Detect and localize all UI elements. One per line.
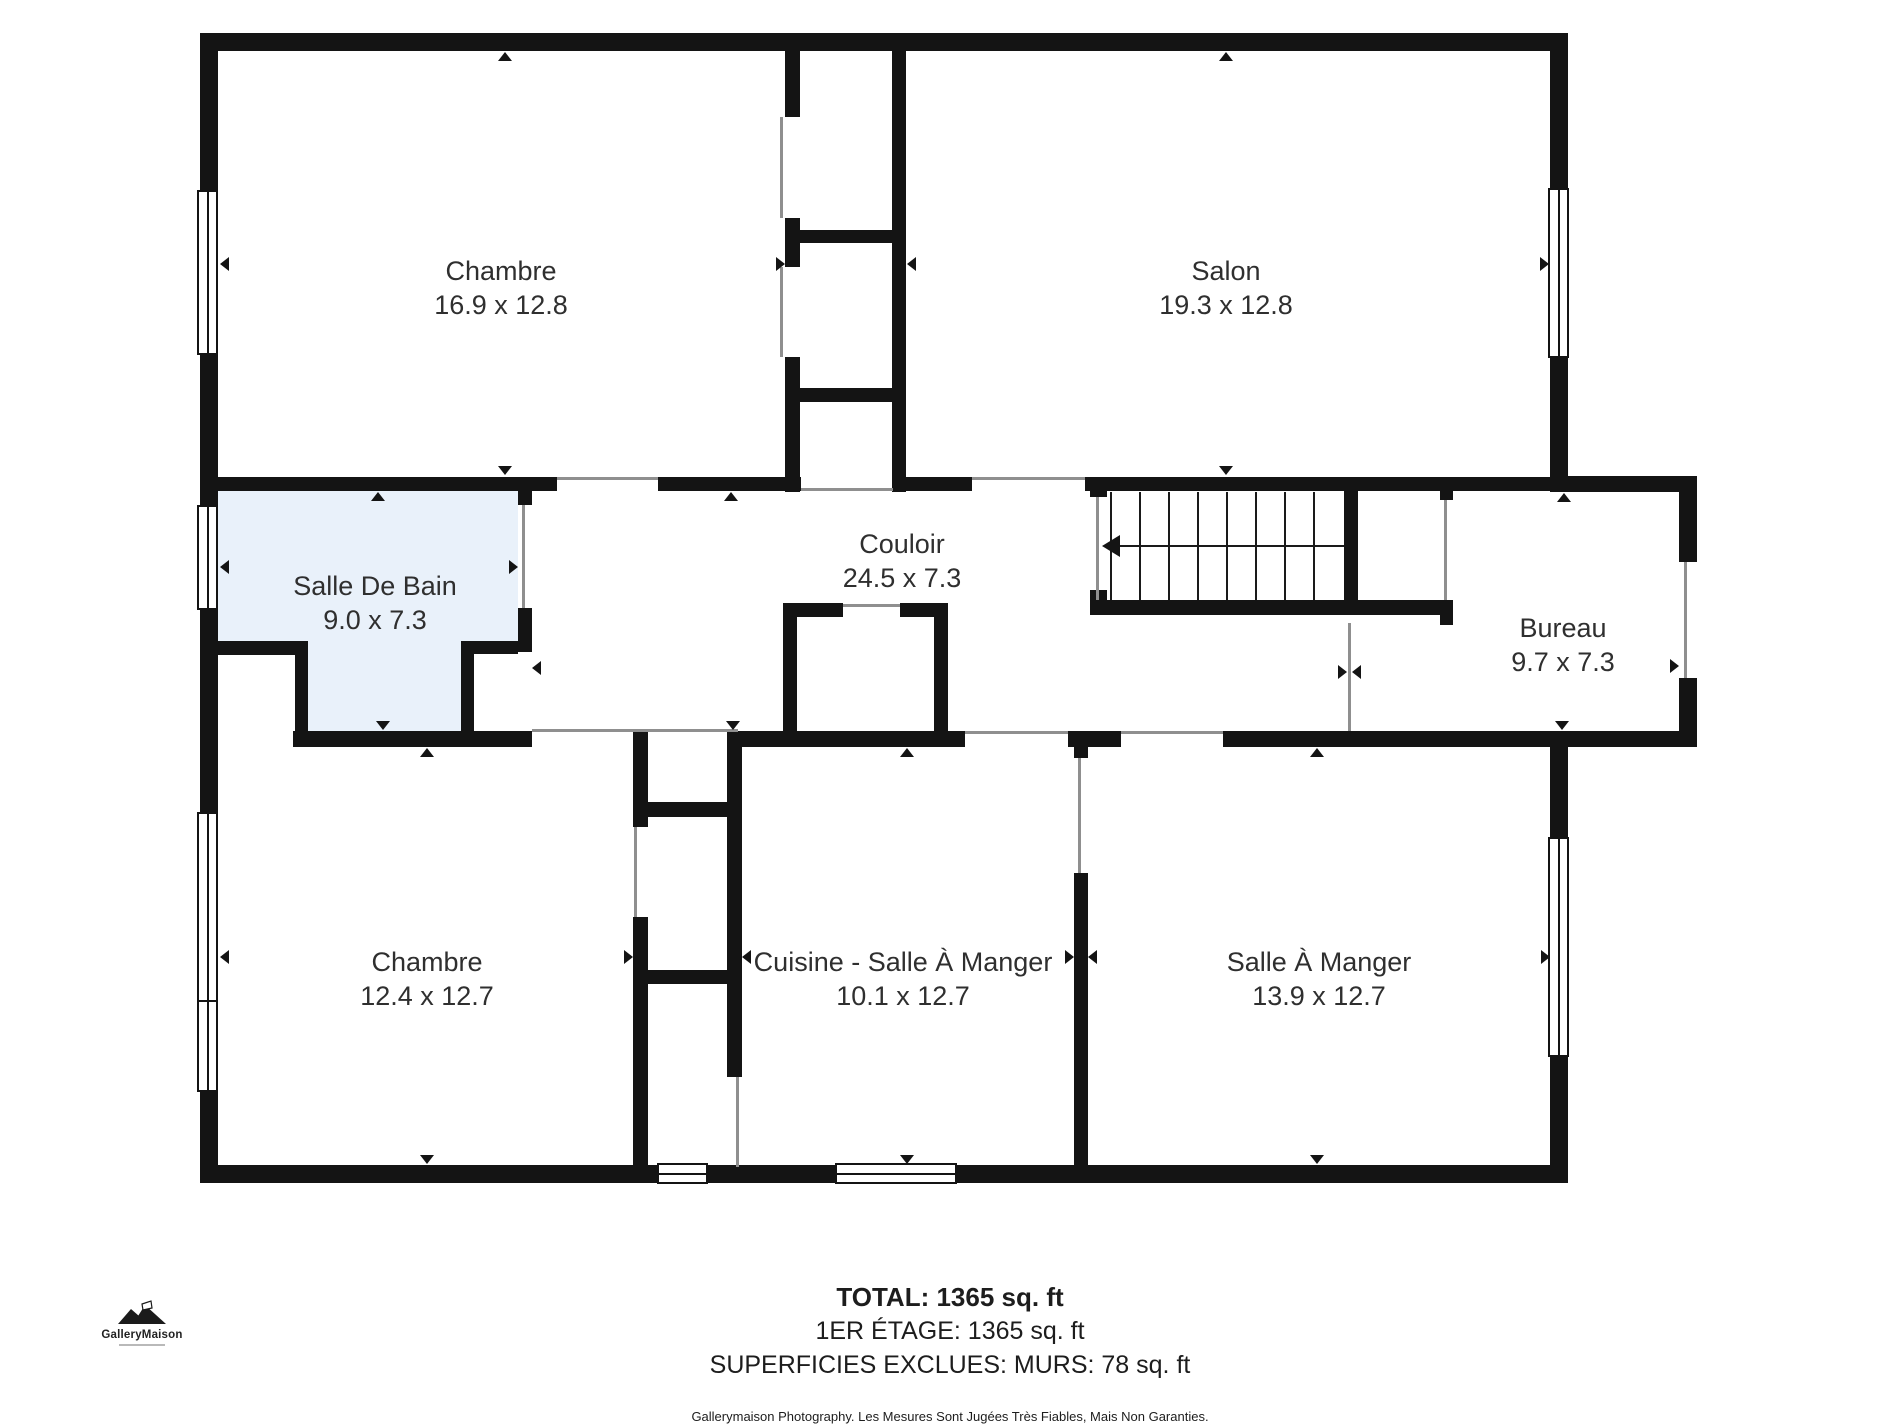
room-name: Salon	[1191, 256, 1260, 286]
door-opening	[532, 729, 738, 732]
dimension-arrow-icon	[900, 1155, 914, 1164]
dimension-arrow-icon	[1338, 665, 1347, 679]
bathroom-floor-fill-lower	[308, 641, 461, 731]
dimension-arrow-icon	[1088, 950, 1097, 964]
dimension-arrow-icon	[1557, 493, 1571, 502]
disclaimer-text: Gallerymaison Photography. Les Mesures S…	[0, 1409, 1900, 1424]
door-opening	[780, 117, 783, 218]
door-opening	[557, 477, 658, 480]
wall	[633, 917, 648, 1165]
window	[835, 1163, 957, 1184]
dimension-arrow-icon	[1065, 950, 1074, 964]
room-label-chambre-bl: Chambre 12.4 x 12.7	[360, 945, 494, 1013]
wall	[1344, 491, 1358, 615]
window-glass-line	[207, 1002, 209, 1090]
wall	[658, 477, 801, 491]
wall	[200, 477, 557, 491]
wall	[295, 641, 308, 747]
window-glass-line	[1558, 190, 1560, 356]
room-dimensions: 9.7 x 7.3	[1511, 647, 1615, 677]
logo-text: GalleryMaison	[96, 1329, 188, 1341]
wall	[1550, 731, 1697, 747]
window	[197, 190, 218, 355]
wall	[200, 33, 1568, 51]
room-label-chambre-tl: Chambre 16.9 x 12.8	[434, 254, 568, 322]
window-glass-line	[837, 1173, 955, 1175]
wall	[1074, 873, 1088, 1165]
window-glass-line	[659, 1173, 706, 1175]
wall	[648, 802, 727, 817]
wall	[633, 731, 648, 827]
door-opening	[1078, 758, 1081, 873]
dimension-arrow-icon	[498, 466, 512, 475]
wall	[648, 970, 727, 984]
dimension-arrow-icon	[1352, 665, 1361, 679]
dimension-arrow-icon	[1555, 721, 1569, 730]
room-dimensions: 24.5 x 7.3	[843, 563, 962, 593]
room-name: Couloir	[859, 529, 945, 559]
dimension-arrow-icon	[624, 950, 633, 964]
window	[1548, 837, 1569, 1057]
wall	[461, 641, 474, 747]
door-opening	[1684, 562, 1687, 678]
room-name: Bureau	[1519, 613, 1606, 643]
room-dimensions: 9.0 x 7.3	[323, 605, 427, 635]
room-dimensions: 13.9 x 12.7	[1252, 981, 1386, 1011]
door-opening	[972, 477, 1085, 480]
wall	[1068, 731, 1121, 747]
room-label-bureau: Bureau 9.7 x 7.3	[1511, 611, 1615, 679]
door-opening	[634, 827, 637, 917]
dimension-arrow-icon	[498, 52, 512, 61]
floor-plan: Chambre 16.9 x 12.8 Salon 19.3 x 12.8 Sa…	[0, 0, 1900, 1425]
window-glass-line	[1558, 839, 1560, 1055]
stairs-direction-line	[1112, 545, 1344, 547]
excluded-area-text: SUPERFICIES EXCLUES: MURS: 78 sq. ft	[0, 1351, 1900, 1380]
room-label-couloir: Couloir 24.5 x 7.3	[843, 527, 962, 595]
wall	[785, 51, 800, 117]
door-opening	[736, 1077, 739, 1167]
dimension-arrow-icon	[742, 950, 751, 964]
dimension-arrow-icon	[907, 257, 916, 271]
room-label-salle-a-manger: Salle À Manger 13.9 x 12.7	[1227, 945, 1412, 1013]
dimension-arrow-icon	[1541, 950, 1550, 964]
dimension-arrow-icon	[1219, 466, 1233, 475]
room-label-salle-de-bain: Salle De Bain 9.0 x 7.3	[293, 569, 457, 637]
dimension-arrow-icon	[1219, 52, 1233, 61]
wall	[1440, 615, 1453, 625]
door-opening	[1444, 500, 1447, 600]
wall	[1550, 358, 1568, 478]
dimension-arrow-icon	[509, 560, 518, 574]
stairs-direction-arrow-icon	[1102, 535, 1120, 557]
dimension-arrow-icon	[376, 721, 390, 730]
dimension-arrow-icon	[420, 748, 434, 757]
wall	[738, 731, 965, 747]
wall	[727, 731, 742, 1077]
room-name: Cuisine - Salle À Manger	[754, 947, 1053, 977]
room-name: Salle À Manger	[1227, 947, 1412, 977]
dimension-arrow-icon	[220, 257, 229, 271]
wall	[1679, 476, 1697, 562]
room-dimensions: 10.1 x 12.7	[836, 981, 970, 1011]
dimension-arrow-icon	[726, 721, 740, 730]
dimension-arrow-icon	[420, 1155, 434, 1164]
logo: GalleryMaison	[96, 1300, 188, 1346]
dimension-arrow-icon	[1670, 659, 1679, 673]
window	[197, 505, 218, 610]
wall	[1223, 731, 1568, 747]
wall	[518, 477, 532, 505]
wall	[708, 1165, 835, 1183]
wall	[892, 51, 906, 492]
wall	[1090, 600, 1453, 615]
room-name: Chambre	[371, 947, 482, 977]
wall	[783, 603, 843, 617]
wall	[785, 357, 800, 492]
wall	[293, 731, 532, 747]
room-dimensions: 19.3 x 12.8	[1159, 290, 1293, 320]
wall	[1550, 33, 1568, 188]
dimension-arrow-icon	[724, 492, 738, 501]
door-opening	[1121, 731, 1223, 734]
total-area-text: TOTAL: 1365 sq. ft	[0, 1282, 1900, 1313]
dimension-arrow-icon	[900, 748, 914, 757]
window	[657, 1163, 708, 1184]
dimension-arrow-icon	[1310, 1155, 1324, 1164]
window	[197, 812, 218, 1002]
door-opening	[965, 731, 1068, 734]
dimension-arrow-icon	[776, 257, 785, 271]
door-opening	[1096, 497, 1099, 600]
dimension-arrow-icon	[1540, 257, 1549, 271]
wall	[200, 610, 218, 812]
wall	[1550, 476, 1697, 492]
room-label-salon: Salon 19.3 x 12.8	[1159, 254, 1293, 322]
dimension-arrow-icon	[220, 950, 229, 964]
logo-mountain-icon	[116, 1300, 168, 1324]
door-opening	[801, 488, 893, 491]
wall	[797, 230, 892, 243]
door-opening	[522, 505, 525, 608]
door-opening	[843, 604, 900, 607]
wall	[1440, 491, 1453, 500]
window	[197, 1000, 218, 1092]
dimension-arrow-icon	[1310, 748, 1324, 757]
wall	[783, 603, 797, 731]
wall	[797, 388, 892, 402]
wall	[518, 608, 532, 652]
door-opening	[780, 267, 783, 357]
dimension-arrow-icon	[220, 560, 229, 574]
door-opening	[1348, 623, 1351, 731]
wall	[957, 1165, 1568, 1183]
logo-tagline-line	[119, 1344, 165, 1346]
window	[1548, 188, 1569, 358]
wall	[200, 1165, 657, 1183]
room-name: Salle De Bain	[293, 571, 457, 601]
room-dimensions: 16.9 x 12.8	[434, 290, 568, 320]
wall	[1074, 746, 1088, 758]
window-glass-line	[207, 192, 209, 353]
wall	[1085, 477, 1568, 491]
room-name: Chambre	[445, 256, 556, 286]
wall	[1550, 747, 1568, 837]
room-dimensions: 12.4 x 12.7	[360, 981, 494, 1011]
floor-area-text: 1ER ÉTAGE: 1365 sq. ft	[0, 1317, 1900, 1346]
dimension-arrow-icon	[371, 492, 385, 501]
wall	[934, 603, 948, 731]
wall	[1090, 477, 1107, 497]
wall	[200, 33, 218, 190]
window-glass-line	[207, 507, 209, 608]
window-glass-line	[207, 814, 209, 1000]
room-label-cuisine: Cuisine - Salle À Manger 10.1 x 12.7	[754, 945, 1053, 1013]
dimension-arrow-icon	[532, 661, 541, 675]
